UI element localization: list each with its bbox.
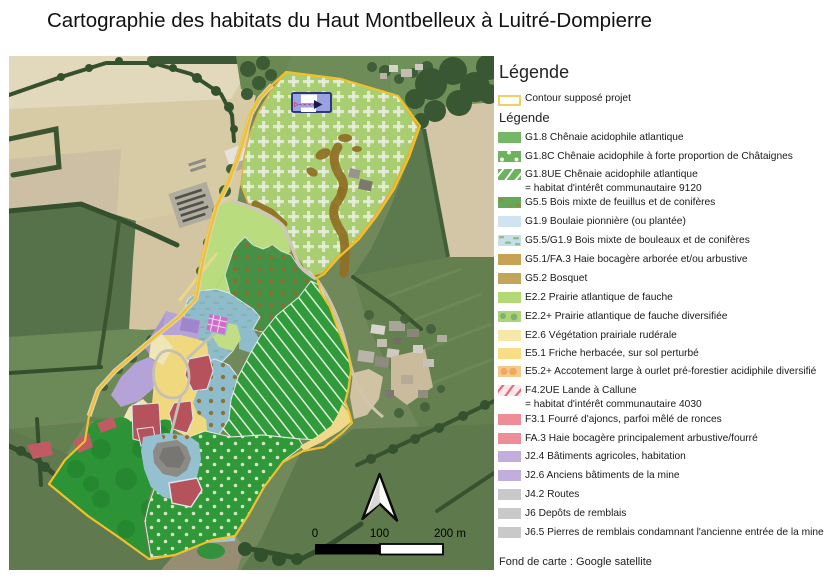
svg-text:0: 0: [312, 528, 318, 540]
svg-text:100: 100: [370, 528, 389, 540]
svg-text:200 m: 200 m: [434, 528, 466, 540]
